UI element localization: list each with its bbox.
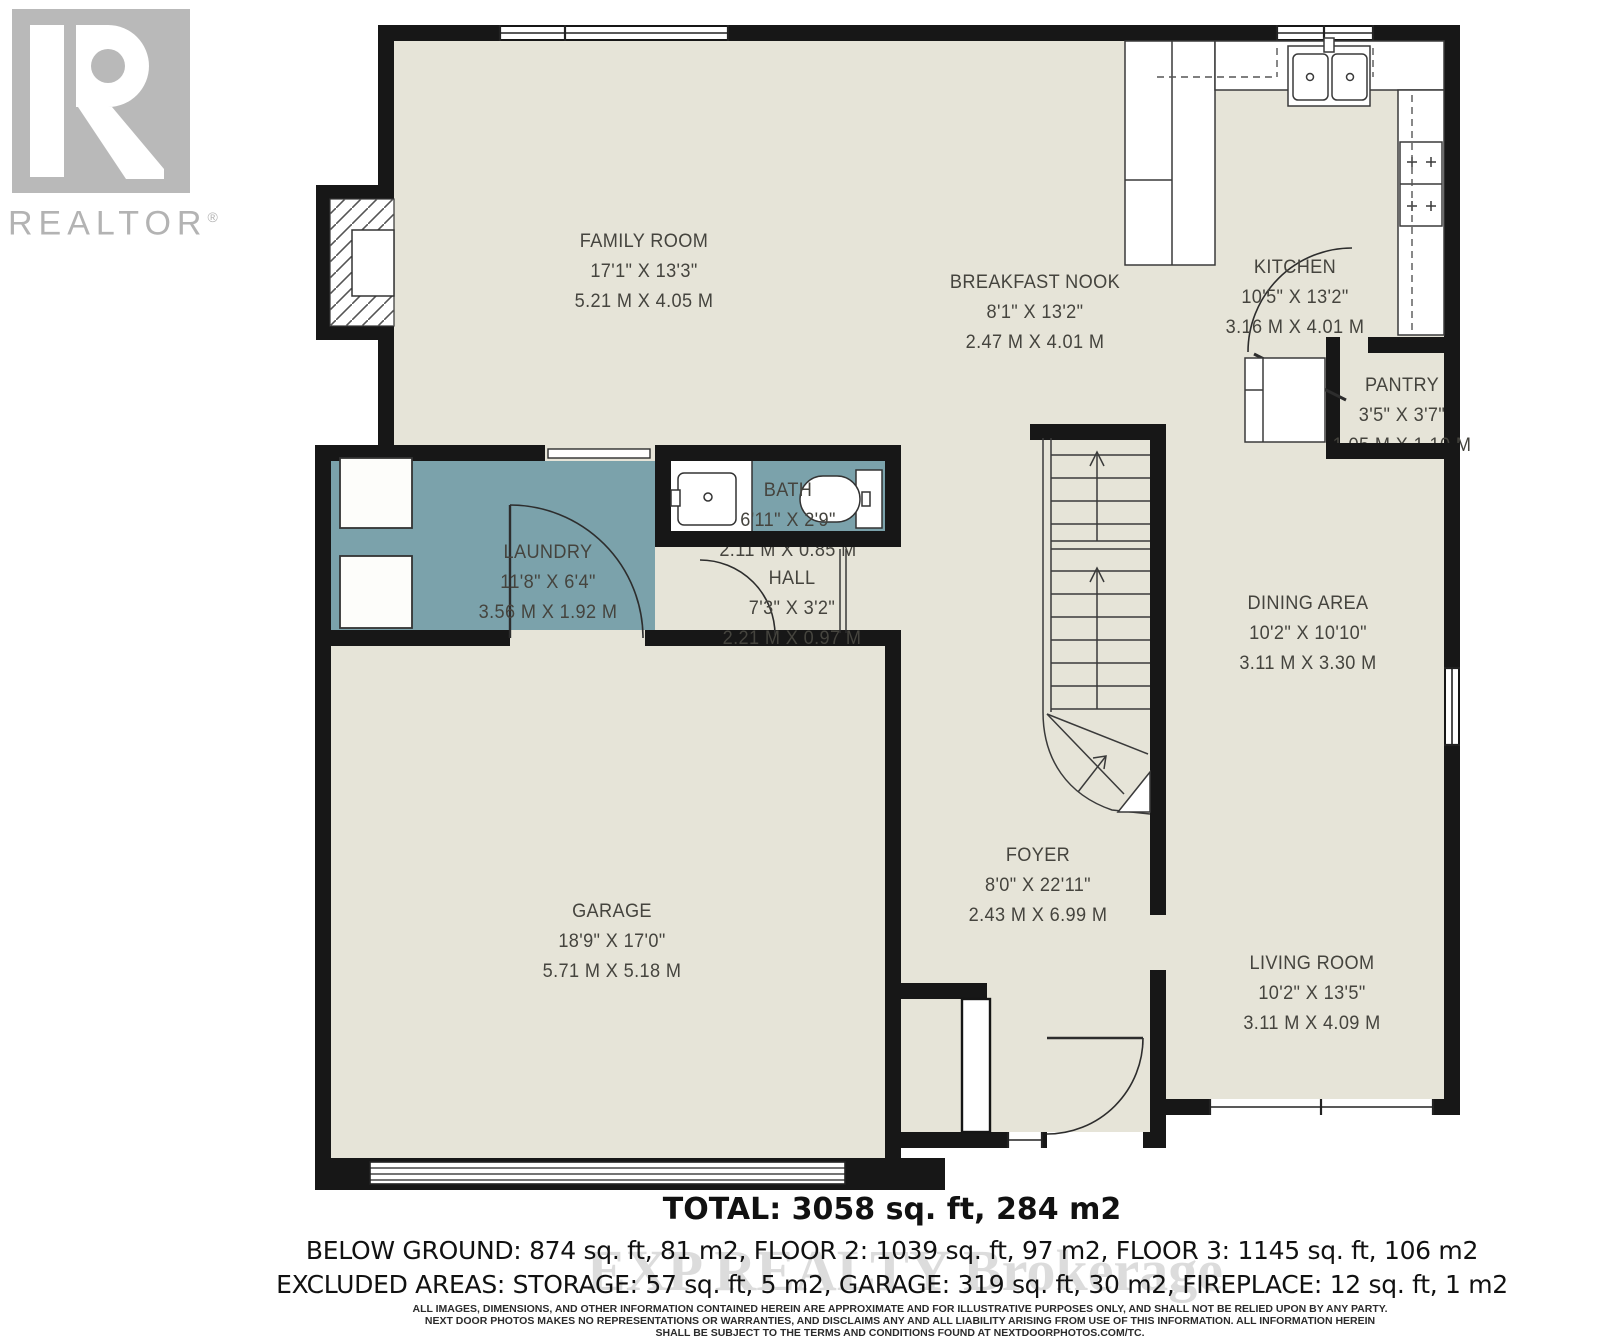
foyer-closet-partition	[962, 999, 990, 1132]
room-label-foyer: FOYER 8'0" X 22'11" 2.43 M X 6.99 M	[969, 840, 1108, 930]
floor-areas-text: BELOW GROUND: 874 sq. ft, 81 m2, FLOOR 2…	[306, 1236, 1478, 1265]
washer	[340, 458, 412, 528]
realtor-wordmark-text: REALTOR	[8, 204, 207, 242]
room-label-garage: GARAGE 18'9" X 17'0" 5.71 M X 5.18 M	[543, 896, 682, 986]
floor-plan-page: REALTOR®	[0, 0, 1600, 1344]
room-name: FAMILY ROOM	[575, 226, 714, 256]
room-dim-metric: 2.43 M X 6.99 M	[969, 900, 1108, 930]
total-area-text: TOTAL: 3058 sq. ft, 284 m2	[663, 1192, 1121, 1227]
family-room-window	[500, 25, 728, 41]
room-name: LIVING ROOM	[1243, 948, 1380, 978]
room-name: LAUNDRY	[479, 537, 618, 567]
room-dim-metric: 2.47 M X 4.01 M	[950, 327, 1120, 357]
dryer	[340, 556, 412, 628]
room-name: BREAKFAST NOOK	[950, 267, 1120, 297]
room-name: DINING AREA	[1239, 588, 1376, 618]
room-dim-imperial: 11'8" X 6'4"	[479, 567, 618, 597]
room-name: PANTRY	[1333, 370, 1472, 400]
room-dim-metric: 3.16 M X 4.01 M	[1226, 312, 1365, 342]
room-label-family-room: FAMILY ROOM 17'1" X 13'3" 5.21 M X 4.05 …	[575, 226, 714, 316]
registered-mark: ®	[207, 209, 217, 225]
room-dim-imperial: 8'0" X 22'11"	[969, 870, 1108, 900]
room-dim-metric: 2.21 M X 0.97 M	[723, 623, 862, 653]
room-label-breakfast-nook: BREAKFAST NOOK 8'1" X 13'2" 2.47 M X 4.0…	[950, 267, 1120, 357]
room-dim-metric: 3.11 M X 3.30 M	[1239, 648, 1376, 678]
room-dim-imperial: 8'1" X 13'2"	[950, 297, 1120, 327]
pantry-bottom-wall	[1326, 443, 1460, 459]
refrigerator	[1245, 358, 1325, 442]
disclaimer-line-1: ALL IMAGES, DIMENSIONS, AND OTHER INFORM…	[412, 1303, 1387, 1315]
room-dim-metric: 5.71 M X 5.18 M	[543, 956, 682, 986]
living-room-window	[1210, 1099, 1433, 1115]
laundry-pocket-door	[548, 449, 650, 458]
room-dim-imperial: 18'9" X 17'0"	[543, 926, 682, 956]
room-dim-imperial: 17'1" X 13'3"	[575, 256, 714, 286]
room-label-hall: HALL 7'3" X 3'2" 2.21 M X 0.97 M	[723, 563, 862, 653]
room-label-dining-area: DINING AREA 10'2" X 10'10" 3.11 M X 3.30…	[1239, 588, 1376, 678]
realtor-wordmark: REALTOR®	[8, 198, 218, 242]
kitchen-sink	[1288, 38, 1370, 106]
room-label-kitchen: KITCHEN 10'5" X 13'2" 3.16 M X 4.01 M	[1226, 252, 1365, 342]
disclaimer-line-2: NEXT DOOR PHOTOS MAKES NO REPRESENTATION…	[425, 1315, 1375, 1327]
garage-door	[370, 1162, 845, 1184]
room-label-laundry: LAUNDRY 11'8" X 6'4" 3.56 M X 1.92 M	[479, 537, 618, 627]
room-dim-imperial: 10'5" X 13'2"	[1226, 282, 1365, 312]
room-dim-imperial: 10'2" X 13'5"	[1243, 978, 1380, 1008]
room-dim-metric: 3.56 M X 1.92 M	[479, 597, 618, 627]
room-label-living-room: LIVING ROOM 10'2" X 13'5" 3.11 M X 4.09 …	[1243, 948, 1380, 1038]
room-dim-metric: 5.21 M X 4.05 M	[575, 286, 714, 316]
room-name: KITCHEN	[1226, 252, 1365, 282]
room-name: BATH	[719, 475, 856, 505]
stove	[1400, 142, 1442, 226]
room-dim-imperial: 7'3" X 3'2"	[723, 593, 862, 623]
room-name: GARAGE	[543, 896, 682, 926]
fireplace	[330, 199, 394, 326]
room-dim-imperial: 3'5" X 3'7"	[1333, 400, 1472, 430]
realtor-logo-icon	[12, 9, 190, 193]
dining-window	[1444, 668, 1460, 745]
entry-sidelight-window	[1008, 1132, 1042, 1148]
room-dim-imperial: 10'2" X 10'10"	[1239, 618, 1376, 648]
room-label-bath: BATH 6'11" X 2'9" 2.11 M X 0.85 M	[719, 475, 856, 565]
room-name: FOYER	[969, 840, 1108, 870]
room-name: HALL	[723, 563, 862, 593]
kitchen-peninsula-counter	[1125, 41, 1215, 265]
bath-bottom-wall	[655, 531, 901, 547]
excluded-areas-text: EXCLUDED AREAS: STORAGE: 57 sq. ft, 5 m2…	[276, 1270, 1508, 1299]
disclaimer-line-3: SHALL BE SUBJECT TO THE TERMS AND CONDIT…	[655, 1327, 1144, 1339]
room-dim-metric: 3.11 M X 4.09 M	[1243, 1008, 1380, 1038]
